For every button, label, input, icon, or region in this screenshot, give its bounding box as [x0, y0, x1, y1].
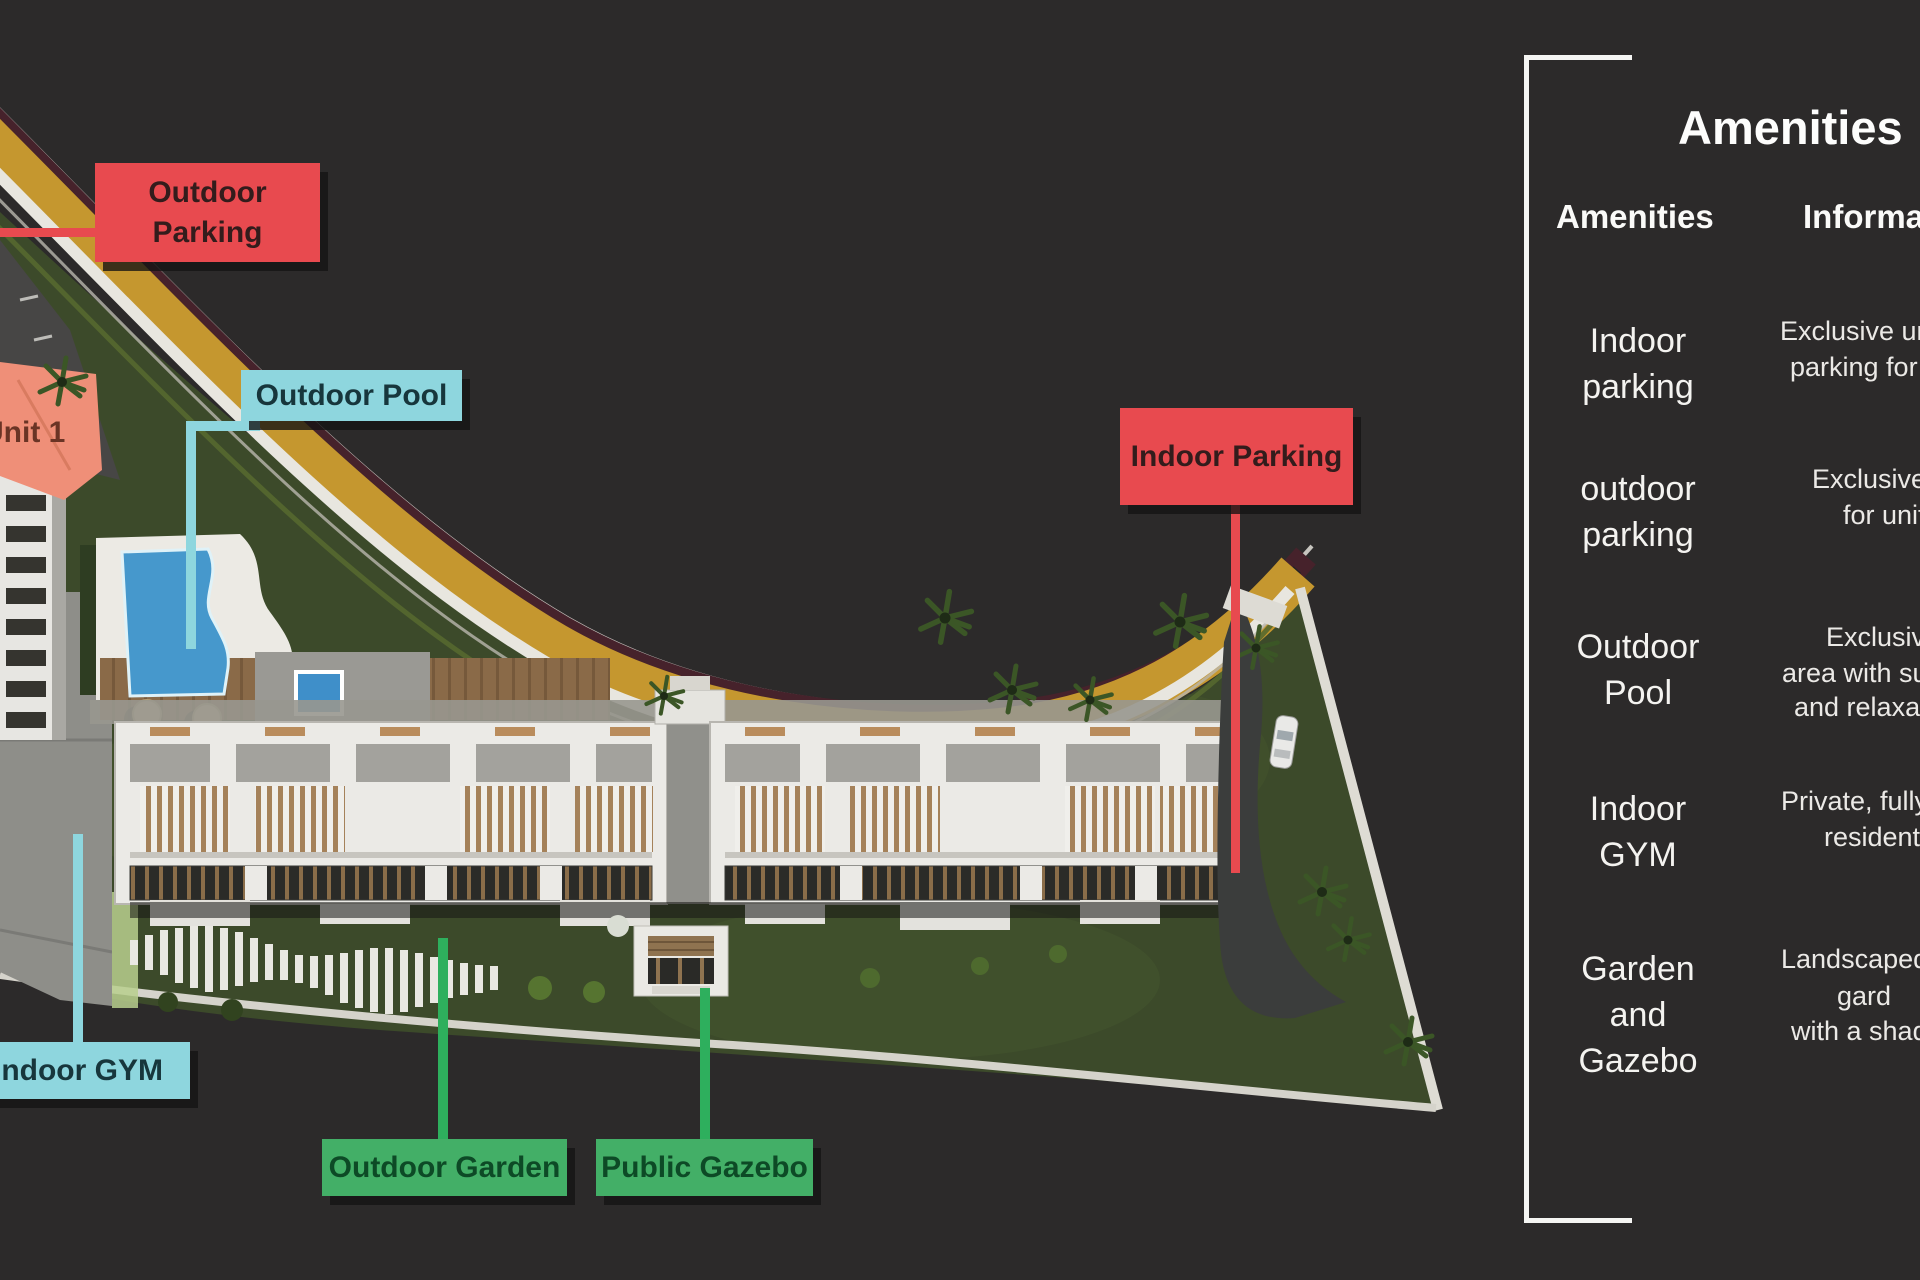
amenity-name-line: Indoor	[1548, 318, 1728, 364]
amenity-name-line: Indoor	[1548, 786, 1728, 832]
column-header-information: Information	[1803, 198, 1920, 236]
outdoor-pool-label-text: Outdoor Pool	[256, 376, 448, 416]
outdoor-garden-leader	[438, 938, 448, 1141]
main-building-block-b	[710, 722, 1238, 930]
indoor-gym-leader	[73, 834, 83, 1044]
amenity-info-line: Exclusive	[1812, 464, 1920, 495]
amenity-info-line: Exclusive	[1826, 622, 1920, 653]
outdoor-pool-leader-h	[188, 421, 260, 431]
amenity-name-line: parking	[1548, 364, 1728, 410]
outdoor-pool-label: Outdoor Pool	[241, 370, 462, 421]
amenity-name-outdoor-parking: outdoor parking	[1548, 466, 1728, 558]
amenity-name-indoor-gym: Indoor GYM	[1548, 786, 1728, 878]
outdoor-garden-label-text: Outdoor Garden	[329, 1148, 561, 1188]
panel-border-top-arm	[1524, 55, 1632, 60]
amenity-name-indoor-parking: Indoor parking	[1548, 318, 1728, 410]
unit-1-tag: Unit 1	[0, 416, 65, 449]
amenity-info-line: Exclusive un	[1780, 316, 1920, 347]
amenity-name-outdoor-pool: Outdoor Pool	[1548, 624, 1728, 716]
public-gazebo-label-text: Public Gazebo	[601, 1148, 808, 1188]
amenity-info-line: parking for 1	[1790, 352, 1920, 383]
panel-border-bottom-arm	[1524, 1218, 1632, 1223]
amenity-info-line: gard	[1837, 981, 1891, 1012]
amenity-name-line: outdoor	[1548, 466, 1728, 512]
amenity-name-line: Pool	[1548, 670, 1728, 716]
outdoor-garden-label: Outdoor Garden	[322, 1139, 567, 1196]
indoor-gym-label: Indoor GYM	[0, 1042, 190, 1099]
panel-border-vertical	[1524, 55, 1529, 1223]
outdoor-pool-water	[122, 549, 228, 696]
amenity-name-line: Garden	[1548, 946, 1728, 992]
outdoor-parking-label-line1: Outdoor	[148, 173, 266, 213]
panel-title: Amenities	[1678, 100, 1920, 155]
indoor-parking-label: Indoor Parking	[1120, 408, 1353, 505]
indoor-parking-label-text: Indoor Parking	[1131, 437, 1343, 477]
outdoor-pool-leader-v	[186, 421, 196, 649]
outdoor-parking-label: Outdoor Parking	[95, 163, 320, 262]
amenity-name-line: Outdoor	[1548, 624, 1728, 670]
indoor-gym-label-text: Indoor GYM	[0, 1051, 163, 1091]
public-gazebo-label: Public Gazebo	[596, 1139, 813, 1196]
amenity-name-garden-gazebo: Garden and Gazebo	[1548, 946, 1728, 1084]
amenity-info-line: resident	[1824, 822, 1920, 853]
amenity-info-line: Private, fully	[1781, 786, 1920, 817]
amenity-info-line: and relaxat	[1794, 692, 1920, 723]
amenity-name-line: and Gazebo	[1548, 992, 1728, 1084]
column-header-amenities: Amenities	[1556, 198, 1714, 236]
outdoor-parking-leader	[0, 228, 95, 237]
main-building-block-a	[115, 722, 667, 926]
outdoor-parking-label-line2: Parking	[152, 213, 262, 253]
amenity-info-line: area with su	[1782, 658, 1920, 689]
amenity-info-line: for unit	[1843, 500, 1920, 531]
amenity-info-line: Landscaped	[1781, 944, 1920, 975]
amenity-info-line: with a shad	[1791, 1016, 1920, 1047]
amenity-name-line: parking	[1548, 512, 1728, 558]
public-gazebo-leader	[700, 988, 710, 1141]
indoor-parking-leader	[1231, 503, 1240, 873]
amenity-name-line: GYM	[1548, 832, 1728, 878]
